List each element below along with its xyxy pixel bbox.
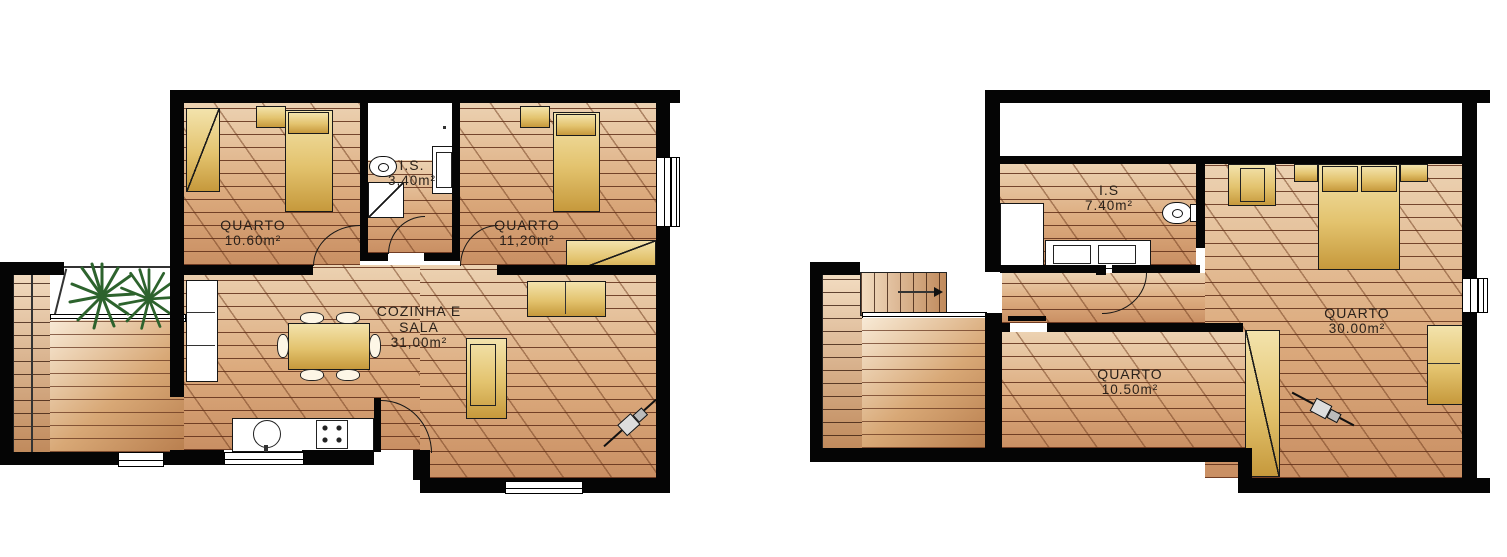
- room-area: 11,20m²: [494, 233, 559, 249]
- room-area: 3,40m²: [388, 173, 436, 189]
- armchair-seat: [470, 344, 496, 406]
- wall: [992, 323, 1010, 332]
- shower-cabinet: [1000, 203, 1044, 269]
- chair: [300, 369, 324, 381]
- stairs-direction-arrow: [934, 287, 943, 297]
- room-label-quarto4: QUARTO 10.50m²: [1097, 366, 1162, 398]
- room-label-is1: I.S. 3,40m²: [388, 157, 436, 189]
- dresser-front: [1240, 168, 1265, 202]
- wall: [998, 156, 1462, 164]
- door-leaf: [1008, 316, 1046, 321]
- stairs-arrow-line: [898, 291, 936, 293]
- stairs-landing: [822, 272, 864, 450]
- wall: [810, 448, 1250, 462]
- room-label-is2: I.S 7.40m²: [1085, 182, 1133, 214]
- bed-pillow: [1361, 166, 1397, 192]
- vanity-sink: [1053, 245, 1091, 264]
- window-sill: [1478, 278, 1488, 313]
- wall: [810, 262, 860, 275]
- wall: [1462, 311, 1477, 493]
- wall: [1112, 265, 1200, 273]
- wall: [184, 265, 313, 275]
- sofa-loveseat: [527, 281, 606, 317]
- room-name: QUARTO: [1097, 366, 1162, 382]
- wall: [1000, 265, 1096, 273]
- entrance-door-leaf: [374, 398, 381, 452]
- wall: [1240, 478, 1490, 493]
- wall: [170, 90, 184, 397]
- wall: [302, 450, 374, 465]
- bed-pillow: [556, 114, 596, 136]
- wall: [170, 450, 224, 465]
- dining-table: [288, 323, 370, 370]
- wall: [413, 450, 430, 480]
- wall: [0, 262, 64, 275]
- window: [505, 481, 583, 494]
- wall: [1196, 164, 1205, 248]
- room-area: 31,00m²: [363, 335, 475, 351]
- window: [656, 157, 671, 227]
- floor-plan-drawing: QUARTO 10.60m² I.S. 3,40m² QUARTO 11,20m…: [0, 0, 1507, 557]
- wall: [985, 90, 1490, 103]
- stairs-divider: [31, 268, 33, 452]
- room-label-quarto1: QUARTO 10.60m²: [220, 217, 285, 249]
- window: [224, 452, 304, 465]
- wall: [0, 262, 13, 465]
- room-name: QUARTO: [494, 217, 559, 233]
- stove-icon: [316, 420, 348, 449]
- window: [118, 452, 164, 467]
- chair: [336, 312, 360, 324]
- wall: [810, 262, 822, 460]
- room-label-cozinha: COZINHA E SALA 31,00m²: [363, 303, 475, 351]
- wall: [452, 103, 460, 253]
- vanity-sink: [1098, 245, 1136, 264]
- attic-void: [1000, 103, 1462, 156]
- kitchen-cabinet: [186, 280, 218, 382]
- wall: [424, 253, 460, 261]
- sink-icon: [253, 420, 281, 448]
- wall: [985, 313, 1002, 460]
- room-name: I.S: [1085, 182, 1133, 198]
- bed-pillow: [1322, 166, 1358, 192]
- cabinet-shelf: [187, 312, 215, 313]
- room-area: 7.40m²: [1085, 198, 1133, 214]
- room-label-quarto3: QUARTO 30.00m²: [1324, 305, 1389, 337]
- sofa-cushion-line: [565, 282, 566, 314]
- wall: [360, 253, 388, 261]
- chair: [300, 312, 324, 324]
- wardrobe: [186, 108, 220, 192]
- wall: [170, 90, 680, 103]
- room-area: 30.00m²: [1324, 321, 1389, 337]
- wall: [0, 452, 118, 465]
- wall: [1047, 323, 1243, 332]
- room-name: I.S.: [388, 157, 436, 173]
- drain-mark: [443, 126, 446, 129]
- room-area: 10.50m²: [1097, 382, 1162, 398]
- patio-deck: [50, 320, 184, 452]
- sofa-cushion-line: [1428, 363, 1460, 364]
- bedside-table: [1294, 164, 1318, 182]
- toilet-icon: [1162, 202, 1192, 224]
- room-name: QUARTO: [1324, 305, 1389, 321]
- wall: [1462, 90, 1477, 278]
- chair: [336, 369, 360, 381]
- window-sill: [671, 157, 680, 227]
- door-leaf: [1096, 265, 1106, 275]
- room-label-quarto2: QUARTO 11,20m²: [494, 217, 559, 249]
- room-area: 10.60m²: [220, 233, 285, 249]
- deck: [862, 318, 985, 448]
- bedside-table: [1400, 164, 1428, 182]
- wall: [360, 103, 368, 253]
- bedside-table: [256, 106, 286, 128]
- vanity-sink: [436, 152, 452, 188]
- cabinet-shelf: [187, 345, 215, 346]
- wall: [985, 90, 1000, 272]
- chair: [277, 334, 289, 358]
- wall: [497, 265, 656, 275]
- room-name: COZINHA E SALA: [363, 303, 475, 335]
- window: [1462, 278, 1478, 313]
- sofa: [1427, 325, 1463, 405]
- room-name: QUARTO: [220, 217, 285, 233]
- wall: [656, 90, 670, 493]
- bed-pillow: [288, 112, 329, 134]
- bedside-table: [520, 106, 550, 128]
